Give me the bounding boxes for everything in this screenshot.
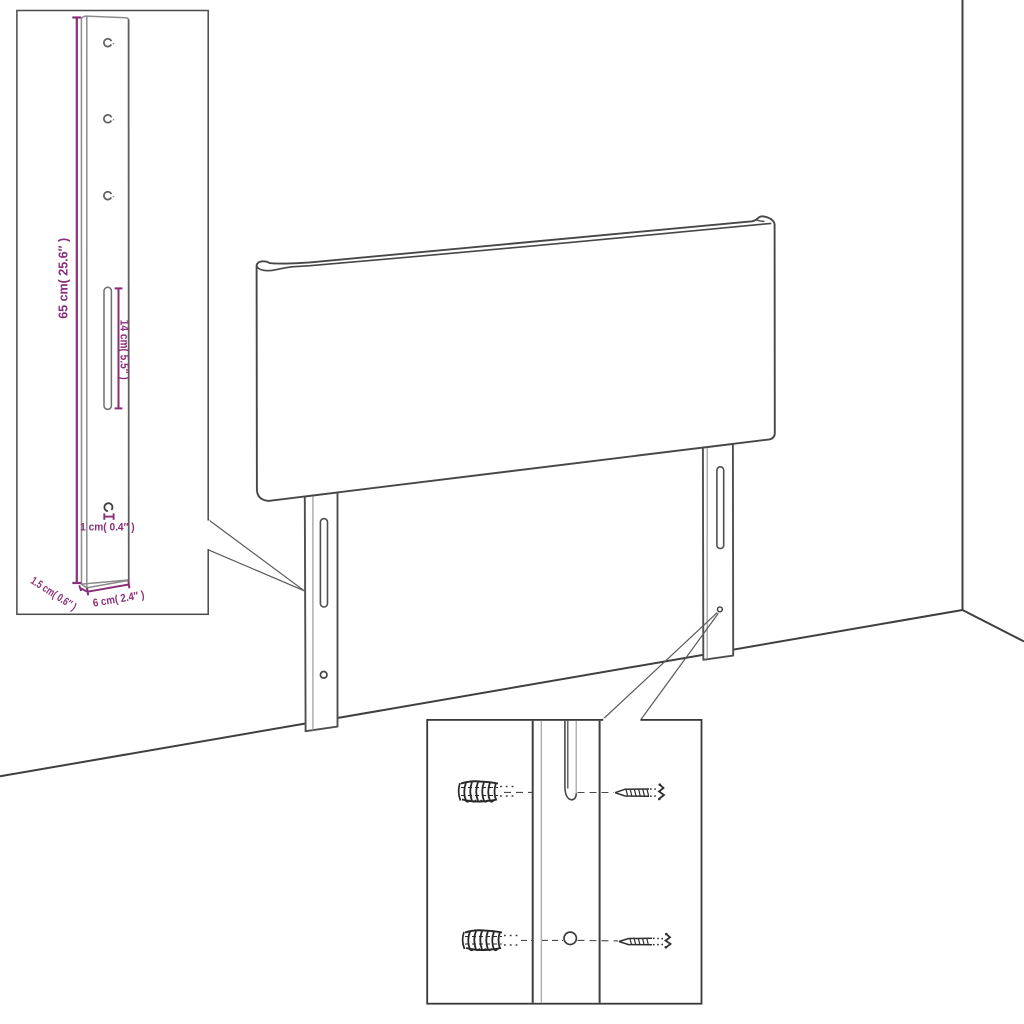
svg-text:1 cm( 0.4″ ): 1 cm( 0.4″ ) xyxy=(80,521,135,533)
svg-text:65 cm( 25.6″ ): 65 cm( 25.6″ ) xyxy=(56,238,71,319)
svg-text:14 cm( 5.5″ ): 14 cm( 5.5″ ) xyxy=(118,320,131,380)
